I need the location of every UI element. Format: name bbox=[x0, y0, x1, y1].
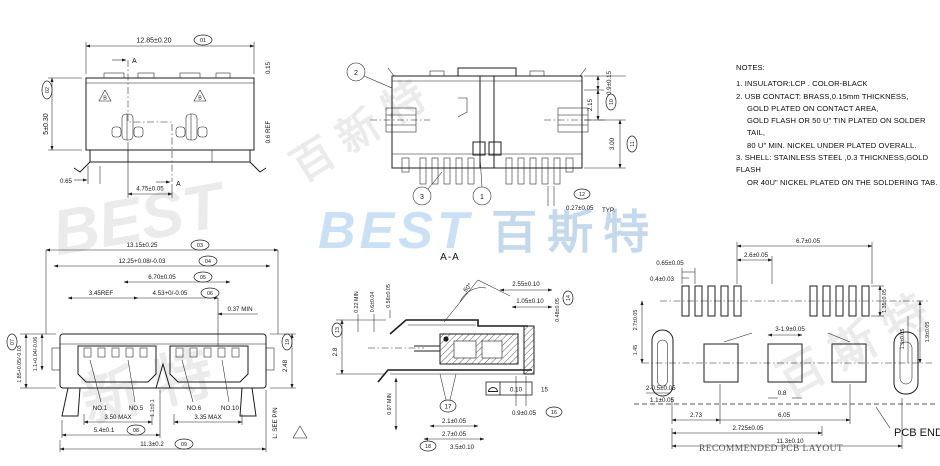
pin-no10-label: NO.10 bbox=[221, 405, 239, 412]
gdt-frame: 0.10 15 bbox=[486, 382, 548, 395]
top-view: A A B B 12.85±0.20 01 5±0.30 02 0.15 0.6… bbox=[8, 26, 318, 214]
dim-06: 0.6±0.04 bbox=[370, 292, 376, 313]
note-line: 1. INSULATOR:LCP . COLOR-BLACK bbox=[736, 78, 938, 90]
dim-tail: 0.9±0.15 bbox=[606, 70, 613, 95]
dim-depth-id: 11 bbox=[630, 141, 636, 147]
dim-step: 2.15 bbox=[587, 98, 594, 111]
dim-h3: 2.48 bbox=[282, 359, 289, 372]
note-line: GOLD FLASH OR 50 U" TIN PLATED ON SOLDER… bbox=[736, 115, 938, 140]
dim-335max: 3.35 MAX bbox=[194, 414, 221, 421]
datum-triangles: B B bbox=[99, 90, 206, 102]
dim-port453: 4.53+0/-0.05 bbox=[153, 290, 188, 297]
dim-width: 12.85±0.20 bbox=[137, 38, 172, 45]
dim-h1: 1.85+0.05/-0.03 bbox=[17, 345, 23, 382]
dim-67: 6.7±0.05 bbox=[796, 238, 821, 245]
note-line: OR 40U" NICKEL PLATED ON THE SOLDERING T… bbox=[736, 177, 938, 189]
front-view: 13.15±0.25 03 12.25+0.08/-0.03 04 6.70±0… bbox=[4, 238, 312, 462]
dim-27-left: 2.7±0.05 bbox=[633, 310, 639, 331]
datum-b-right: B bbox=[198, 96, 202, 102]
dim-span: 11.3±0.2 bbox=[140, 441, 164, 448]
dim-width-id: 01 bbox=[200, 38, 206, 44]
engineering-drawing-sheet: { "colors": {"line": "#1c1c1c", "waterma… bbox=[0, 0, 940, 466]
dim-13: 1.3±0.05 bbox=[900, 329, 906, 350]
dim-ports: 6.70±0.05 bbox=[148, 274, 176, 281]
dim-145: 1.45 bbox=[633, 345, 639, 355]
dim-center-width: 1.1±0.1 bbox=[150, 399, 156, 417]
dim-08: 0.8 bbox=[778, 390, 787, 397]
dim-11: 1.1±0.05 bbox=[650, 397, 675, 404]
dim-feet-id: 08 bbox=[133, 428, 139, 434]
front-view-body bbox=[52, 334, 274, 416]
pcb-layout-view: 6.7±0.05 2.6±0.05 0.65±0.05 0.4±0.03 1.3… bbox=[632, 232, 940, 452]
dim-shell: 13.15±0.25 bbox=[127, 242, 158, 249]
dim-slot: 2-0.5±0.05 bbox=[646, 385, 676, 392]
dim-105: 1.05±0.10 bbox=[516, 298, 544, 305]
dim-09-id: 16 bbox=[551, 410, 557, 416]
dim-angle-60: 60° bbox=[462, 282, 474, 294]
dim-056: 0.56±0.05 bbox=[386, 284, 392, 308]
revision-triangle bbox=[293, 426, 307, 438]
dim-022min: 0.22 MIN bbox=[354, 291, 360, 313]
dim-097min: 0.97 MIN bbox=[387, 393, 393, 415]
bottom-view: 2 3 1 0.9±0.15 10 2.15 3.00 11 12 0.27±0… bbox=[330, 42, 660, 220]
dim-19: 1.9±0.05 bbox=[925, 322, 931, 343]
balloon-2: 2 bbox=[354, 70, 358, 77]
dim-port453-id: 06 bbox=[207, 291, 213, 297]
dim-135: 1.35±0.05 bbox=[882, 289, 888, 313]
section-body bbox=[368, 320, 534, 382]
dim-27: 2.7±0.05 bbox=[442, 431, 467, 438]
dim-pin-id: 12 bbox=[579, 192, 585, 198]
front-view-labels: NO.1 NO.5 NO.6 NO.10 3.50 MAX 3.35 MAX 1… bbox=[60, 360, 266, 452]
dim-pitch: 4.75±0.05 bbox=[136, 186, 164, 193]
dim-ref: 0.6 REF bbox=[265, 120, 272, 143]
datum-b-left: B bbox=[103, 96, 107, 102]
length-note: L: SEE P/N bbox=[272, 407, 279, 438]
dim-h1-id: 07 bbox=[10, 339, 16, 345]
gdt-number: 15 bbox=[541, 387, 548, 394]
notes-title: NOTES: bbox=[736, 62, 938, 74]
dim-04: 0.4±0.03 bbox=[650, 276, 675, 283]
section-title: A-A bbox=[440, 252, 460, 263]
dim-35-id: 18 bbox=[425, 444, 431, 450]
bottom-view-body bbox=[370, 68, 606, 184]
balloon-17: 17 bbox=[445, 404, 452, 411]
balloon-3: 3 bbox=[420, 194, 424, 201]
dim-ports-id: 05 bbox=[200, 275, 206, 281]
dim-255: 2.55±0.10 bbox=[512, 281, 540, 288]
dim-tail-id: 10 bbox=[609, 99, 615, 105]
dim-feet: 5.4±0.1 bbox=[94, 427, 115, 434]
section-dimensions: 0.22 MIN 0.6±0.04 0.56±0.05 2.8 13 60° 2… bbox=[332, 280, 573, 451]
dim-21: 2.1±0.05 bbox=[442, 418, 467, 425]
dim-inner-id: 04 bbox=[205, 259, 211, 265]
dim-pads3x19: 3-1.9±0.05 bbox=[775, 326, 805, 333]
dim-h3-id: 19 bbox=[285, 339, 291, 345]
dim-048: 0.48±0.05 bbox=[555, 298, 561, 322]
dim-tab: 0.65 bbox=[60, 178, 73, 185]
dim-inner: 12.25+0.08/-0.03 bbox=[119, 258, 167, 265]
dim-605: 6.05 bbox=[778, 412, 791, 419]
pcb-end-label: PCB END bbox=[894, 427, 940, 439]
dim-pin-typ: TYP. bbox=[602, 207, 615, 214]
dim-28: 2.8 bbox=[332, 347, 339, 356]
dim-span-id: 09 bbox=[181, 442, 187, 448]
dim-2725: 2.725±0.05 bbox=[733, 425, 764, 432]
section-view: A-A 0.22 MIN 0.6±0.04 0.56±0.05 2.8 13 6… bbox=[328, 246, 573, 454]
note-line: 3. SHELL: STAINLESS STEEL ,0.3 THICKNESS… bbox=[736, 152, 938, 177]
top-view-dimensions: 12.85±0.20 01 5±0.30 02 0.15 0.6 REF 0.6… bbox=[42, 35, 272, 198]
dim-350max: 3.50 MAX bbox=[104, 414, 131, 421]
pin-no6-label: NO.6 bbox=[187, 405, 202, 412]
pin-no5-label: NO.5 bbox=[129, 405, 144, 412]
pcb-layout-caption: RECOMMENDED PCB LAYOUT bbox=[699, 444, 843, 454]
dim-065: 0.65±0.05 bbox=[656, 260, 684, 267]
top-view-body bbox=[74, 73, 266, 172]
gdt-value: 0.10 bbox=[510, 387, 523, 394]
dim-09: 0.9±0.05 bbox=[512, 410, 537, 417]
section-label-a-top: A bbox=[132, 58, 137, 65]
dim-depth: 3.00 bbox=[609, 137, 616, 150]
note-line: 2. USB CONTACT: BRASS,0.15mm THICKNESS, bbox=[736, 91, 938, 103]
dim-273: 2.73 bbox=[690, 412, 703, 419]
notes-block: NOTES: 1. INSULATOR:LCP . COLOR-BLACK 2.… bbox=[736, 62, 938, 189]
dim-pin: 0.27±0.05 bbox=[566, 205, 594, 212]
dim-height-id: 02 bbox=[45, 87, 51, 93]
dim-ref345: 3.45REF bbox=[89, 290, 114, 297]
dim-lip: 0.15 bbox=[265, 61, 272, 74]
dim-037min: 0.37 MIN bbox=[227, 306, 252, 313]
dim-26: 2.6±0.05 bbox=[744, 252, 769, 259]
note-line: 80 U" MIN. NICKEL UNDER PLATED OVERALL. bbox=[736, 140, 938, 152]
section-label-a-bottom: A bbox=[176, 181, 181, 188]
dim-height: 5±0.30 bbox=[43, 113, 50, 134]
balloon-1: 1 bbox=[480, 194, 484, 201]
pcb-pads bbox=[634, 286, 938, 404]
pin-no1-label: NO.1 bbox=[93, 405, 108, 412]
dim-048-id: 14 bbox=[566, 295, 572, 301]
bottom-view-dimensions: 0.9±0.15 10 2.15 3.00 11 12 0.27±0.05 TY… bbox=[548, 70, 637, 214]
dim-shell-id: 03 bbox=[197, 243, 203, 249]
dim-28-id: 13 bbox=[335, 327, 341, 333]
dim-35: 3.5±0.10 bbox=[450, 444, 475, 451]
balloon-callouts: 2 3 1 bbox=[347, 63, 491, 205]
front-view-dimensions-top: 13.15±0.25 03 12.25+0.08/-0.03 04 6.70±0… bbox=[46, 240, 278, 346]
dim-h2: 1.1+0.04/-0.06 bbox=[33, 337, 39, 371]
note-line: GOLD PLATED ON CONTACT AREA, bbox=[736, 103, 938, 115]
